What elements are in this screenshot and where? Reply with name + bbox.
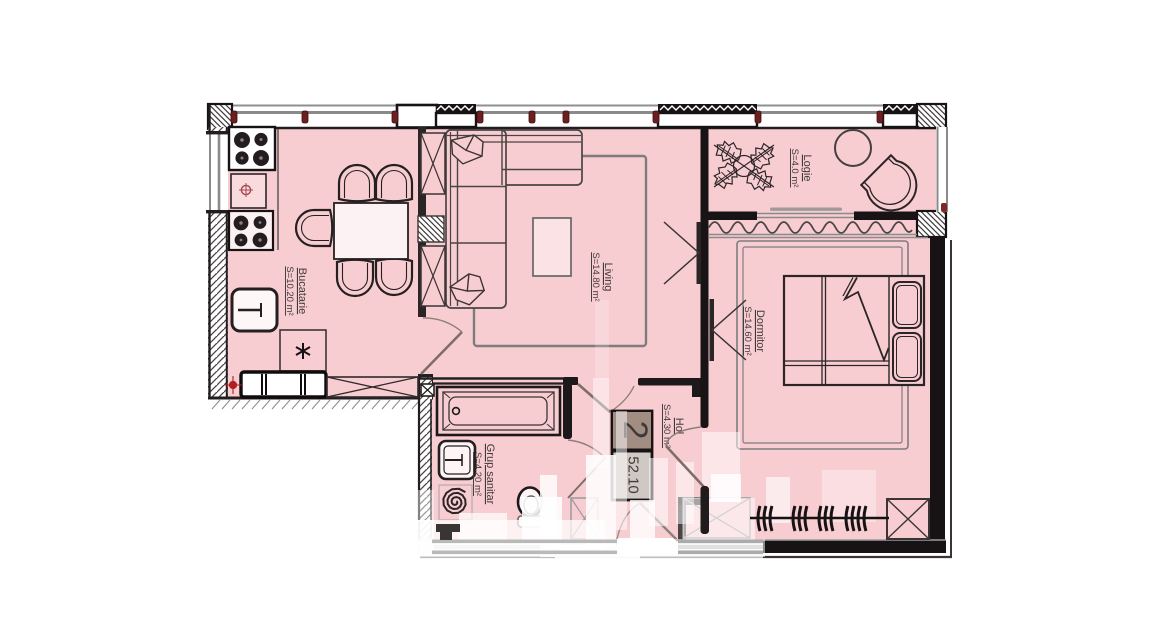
svg-text:S=4.0 m²: S=4.0 m² — [789, 149, 800, 188]
svg-text:S=14.80 m²: S=14.80 m² — [590, 252, 601, 301]
svg-text:52.10: 52.10 — [625, 456, 642, 494]
svg-text:S=14.60 m²: S=14.60 m² — [742, 306, 753, 355]
svg-text:S=4.20 m²: S=4.20 m² — [472, 452, 483, 496]
svg-text:Logie: Logie — [801, 155, 813, 182]
svg-text:Dormitor: Dormitor — [754, 310, 766, 353]
svg-text:Living: Living — [602, 263, 614, 292]
svg-text:Grup sanitar: Grup sanitar — [484, 444, 496, 505]
svg-text:Bucatarie: Bucatarie — [296, 268, 308, 314]
svg-text:S=4.30 m²: S=4.30 m² — [661, 404, 672, 448]
svg-text:S=10.20 m²: S=10.20 m² — [284, 266, 295, 315]
